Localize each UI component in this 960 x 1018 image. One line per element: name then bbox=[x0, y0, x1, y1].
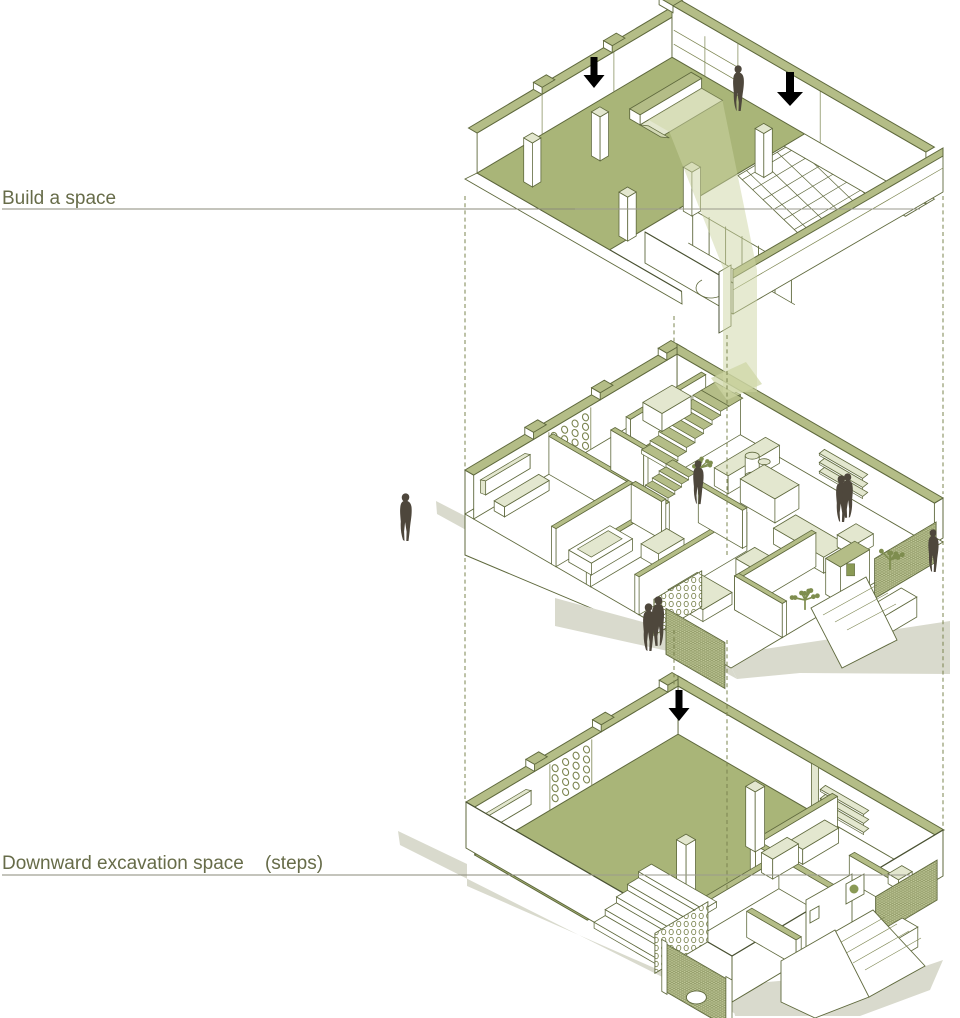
svg-text:Build a space: Build a space bbox=[2, 188, 116, 209]
svg-text:Downward excavation space (: Downward excavation space (steps) bbox=[2, 853, 323, 874]
